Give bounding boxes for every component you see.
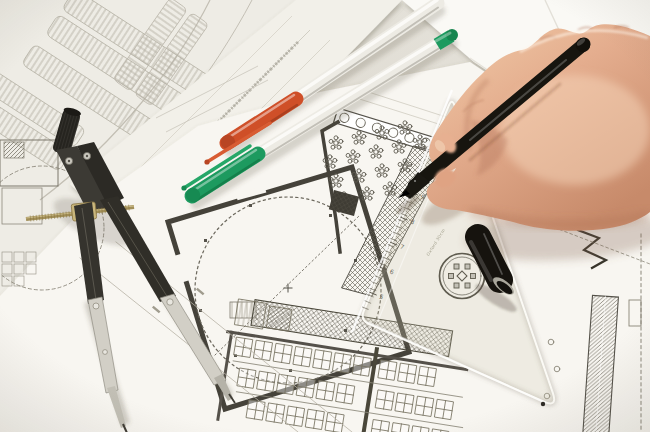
photo-vignette — [0, 0, 650, 432]
photo-architect-desk: Oxford 30cm 5 6 7 8 9 — [0, 0, 650, 432]
scene-canvas: Oxford 30cm 5 6 7 8 9 — [0, 0, 650, 432]
